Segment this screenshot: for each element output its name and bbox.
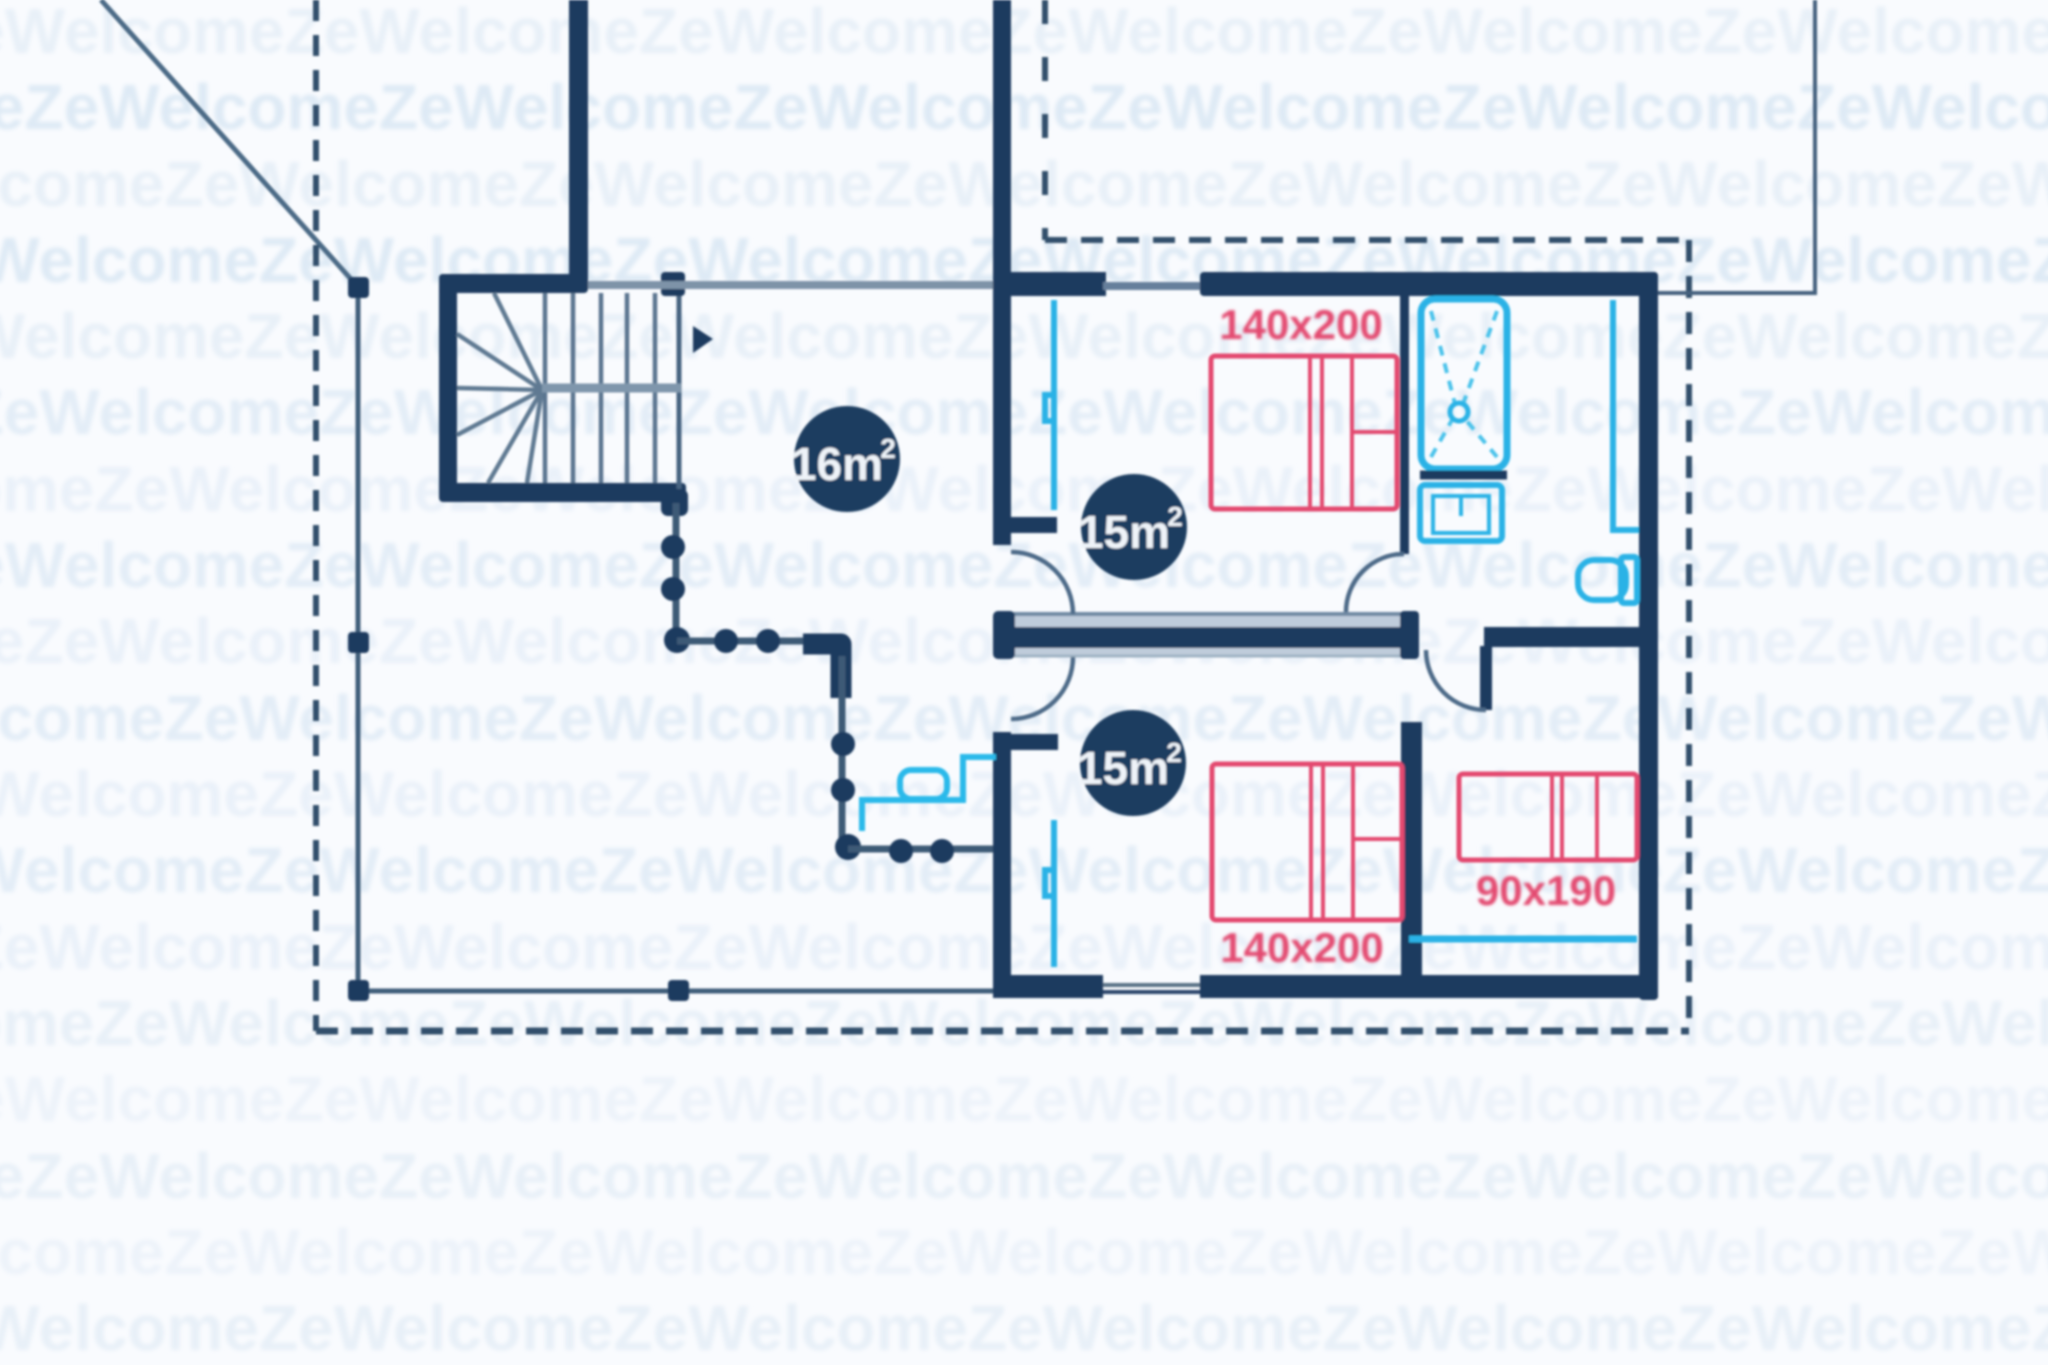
svg-text:16m: 16m	[791, 438, 883, 490]
svg-text:ZeWelcomeZeWelcomeZeWelcomeZeW: ZeWelcomeZeWelcomeZeWelcomeZeWelcomeZeWe…	[0, 71, 2048, 143]
svg-text:ZeWelcomeZeWelcomeZeWelcomeZeW: ZeWelcomeZeWelcomeZeWelcomeZeWelcomeZeWe…	[0, 911, 2048, 983]
svg-text:ZeWelcomeZeWelcomeZeWelcomeZeW: ZeWelcomeZeWelcomeZeWelcomeZeWelcomeZeWe…	[0, 0, 2048, 67]
svg-text:15m: 15m	[1077, 742, 1169, 794]
svg-text:2: 2	[1167, 501, 1183, 532]
svg-text:90x190: 90x190	[1476, 867, 1616, 914]
svg-text:ZeWelcomeZeWelcomeZeWelcomeZeW: ZeWelcomeZeWelcomeZeWelcomeZeWelcomeZeWe…	[0, 300, 2048, 372]
svg-text:ZeWelcomeZeWelcomeZeWelcomeZeW: ZeWelcomeZeWelcomeZeWelcomeZeWelcomeZeWe…	[0, 1140, 2048, 1212]
svg-text:ZeWelcomeZeWelcomeZeWelcomeZeW: ZeWelcomeZeWelcomeZeWelcomeZeWelcomeZeWe…	[0, 376, 2048, 448]
svg-text:ZeWelcomeZeWelcomeZeWelcomeZeW: ZeWelcomeZeWelcomeZeWelcomeZeWelcomeZeWe…	[0, 1063, 2048, 1135]
svg-text:2: 2	[1166, 737, 1182, 768]
svg-text:ZeWelcomeZeWelcomeZeWelcomeZeW: ZeWelcomeZeWelcomeZeWelcomeZeWelcomeZeWe…	[0, 834, 2048, 906]
svg-text:2: 2	[880, 433, 896, 464]
svg-text:ZeWelcomeZeWelcomeZeWelcomeZeW: ZeWelcomeZeWelcomeZeWelcomeZeWelcomeZeWe…	[0, 758, 2048, 830]
svg-text:ZeWelcomeZeWelcomeZeWelcomeZeW: ZeWelcomeZeWelcomeZeWelcomeZeWelcomeZeWe…	[0, 1292, 2048, 1364]
svg-text:140x200: 140x200	[1219, 301, 1383, 348]
svg-text:15m: 15m	[1078, 506, 1170, 558]
svg-text:ZeWelcomeZeWelcomeZeWelcomeZeW: ZeWelcomeZeWelcomeZeWelcomeZeWelcomeZeWe…	[0, 529, 2048, 601]
svg-text:ZeWelcomeZeWelcomeZeWelcomeZeW: ZeWelcomeZeWelcomeZeWelcomeZeWelcomeZeWe…	[0, 148, 2048, 220]
svg-text:ZeWelcomeZeWelcomeZeWelcomeZeW: ZeWelcomeZeWelcomeZeWelcomeZeWelcomeZeWe…	[0, 1216, 2048, 1288]
svg-text:ZeWelcomeZeWelcomeZeWelcomeZeW: ZeWelcomeZeWelcomeZeWelcomeZeWelcomeZeWe…	[0, 453, 2048, 525]
svg-text:140x200: 140x200	[1220, 924, 1384, 971]
